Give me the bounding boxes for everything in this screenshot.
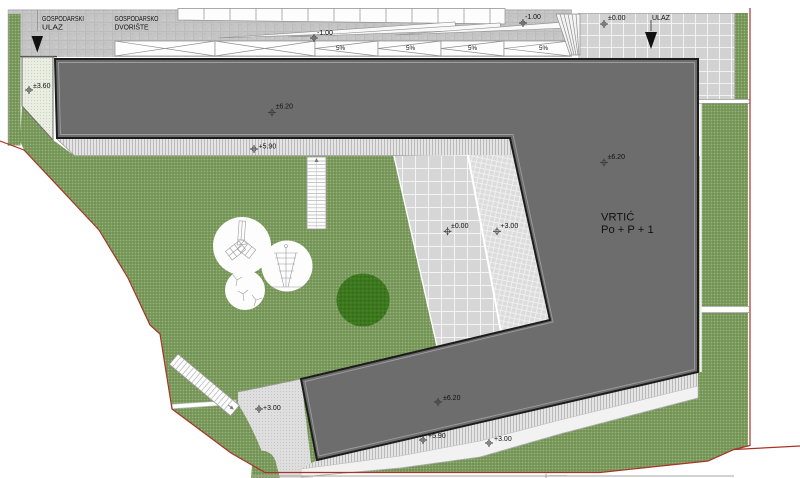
svg-text:Po + P + 1: Po + P + 1 [601,224,654,236]
svg-text:GOSPODARSKI: GOSPODARSKI [42,16,84,23]
svg-text:±0.00: ±0.00 [608,15,626,22]
svg-text:DVORIŠTE: DVORIŠTE [115,23,149,32]
svg-text:±3.60: ±3.60 [33,83,51,90]
svg-text:GOSPODARSKO: GOSPODARSKO [115,16,159,23]
svg-text:5%: 5% [539,45,549,52]
svg-text:+5.90: +5.90 [428,433,446,440]
svg-text:5%: 5% [336,45,346,52]
svg-text:+5.90: +5.90 [259,144,277,151]
svg-text:+3.00: +3.00 [501,223,519,230]
svg-text:ULAZ: ULAZ [652,15,671,22]
svg-text:±6.20: ±6.20 [276,104,294,111]
svg-text:+3.00: +3.00 [263,405,281,412]
svg-text:±6.20: ±6.20 [608,154,626,161]
svg-text:5%: 5% [406,45,416,52]
svg-text:VRTIĆ: VRTIĆ [601,211,634,224]
svg-text:-1.00: -1.00 [317,30,333,37]
svg-text:5%: 5% [468,45,478,52]
svg-text:ULAZ: ULAZ [42,25,64,32]
svg-text:±0.00: ±0.00 [451,223,469,230]
svg-text:+3.00: +3.00 [494,436,512,443]
svg-text:-1.00: -1.00 [525,14,541,21]
svg-text:±6.20: ±6.20 [443,395,461,402]
